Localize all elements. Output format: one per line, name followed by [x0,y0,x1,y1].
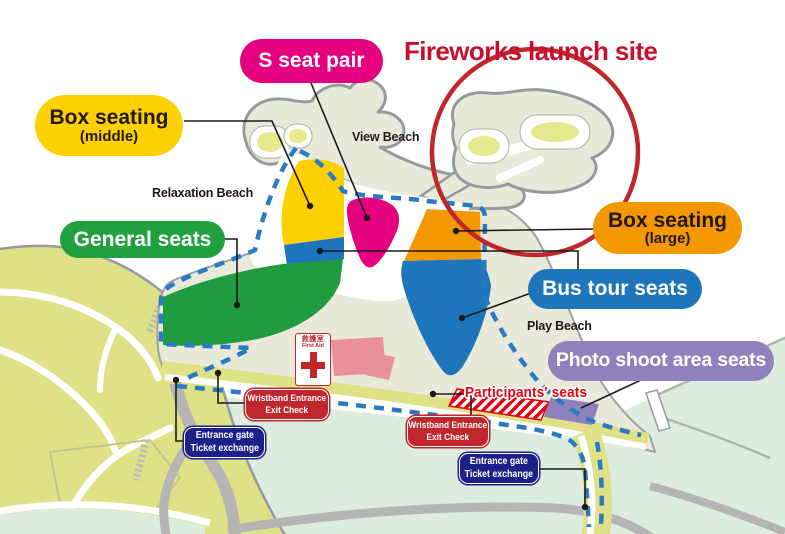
wristband-check-1-line1: Wristband Entrance [248,393,327,405]
legend-general-seats: General seats [60,221,225,258]
headland-pond-2 [289,129,307,143]
entrance-gate-1: Entrance gate Ticket exchange [184,427,265,458]
island-pond-1 [468,136,500,156]
page-title: Fireworks launch site [404,36,657,67]
entrance-gate-2-text: Entrance gate Ticket exchange [465,456,533,481]
legend-photo-shoot-area-seats: Photo shoot area seats [548,341,774,381]
wristband-check-2-line1: Wristband Entrance [409,420,488,432]
wristband-check-1-line2: Exit Check [248,405,327,417]
first-aid-en-label: First Aid [302,343,324,350]
legend-bus-tour-seats-label: Bus tour seats [542,278,688,299]
entrance-gate-2-line2: Ticket exchange [465,469,533,482]
entrance-gate-1-line2: Ticket exchange [190,443,258,456]
first-aid-jp-label: 救護室 [302,336,325,343]
venue-map: Fireworks launch site S seat pair Box se… [0,0,785,534]
entrance-gate-2: Entrance gate Ticket exchange [459,453,539,484]
wristband-check-2-line2: Exit Check [409,432,488,444]
relaxation-beach-label: Relaxation Beach [152,186,253,200]
island-pond-2 [531,122,579,142]
wristband-check-1: Wristband Entrance Exit Check [245,389,329,420]
entrance-gate-1-line1: Entrance gate [190,430,258,443]
participants-seats-label: Participants' seats [465,385,587,401]
legend-s-seat-pair-label: S seat pair [258,50,364,71]
legend-s-seat-pair: S seat pair [240,39,383,83]
legend-box-seating-middle: Box seating (middle) [35,95,183,156]
entrance-gate-1-text: Entrance gate Ticket exchange [190,430,258,455]
entrance-gate-2-line1: Entrance gate [465,456,533,469]
legend-box-seating-large-sublabel: (large) [645,231,691,246]
wristband-check-1-text: Wristband Entrance Exit Check [248,393,327,417]
legend-box-seating-large-label: Box seating [608,210,727,231]
legend-general-seats-label: General seats [74,229,212,250]
view-beach-label: View Beach [352,130,419,144]
red-cross-icon [301,352,325,378]
legend-box-seating-middle-sublabel: (middle) [80,129,138,144]
legend-photo-shoot-area-seats-label: Photo shoot area seats [556,351,766,371]
legend-bus-tour-seats: Bus tour seats [528,269,702,309]
legend-box-seating-middle-label: Box seating [49,107,168,128]
first-aid-station: 救護室 First Aid [295,333,331,386]
venue-map-svg [0,0,785,534]
wristband-check-2-text: Wristband Entrance Exit Check [409,420,488,444]
play-beach-label: Play Beach [527,319,592,333]
wristband-check-2: Wristband Entrance Exit Check [407,416,489,447]
legend-box-seating-large: Box seating (large) [593,202,742,254]
